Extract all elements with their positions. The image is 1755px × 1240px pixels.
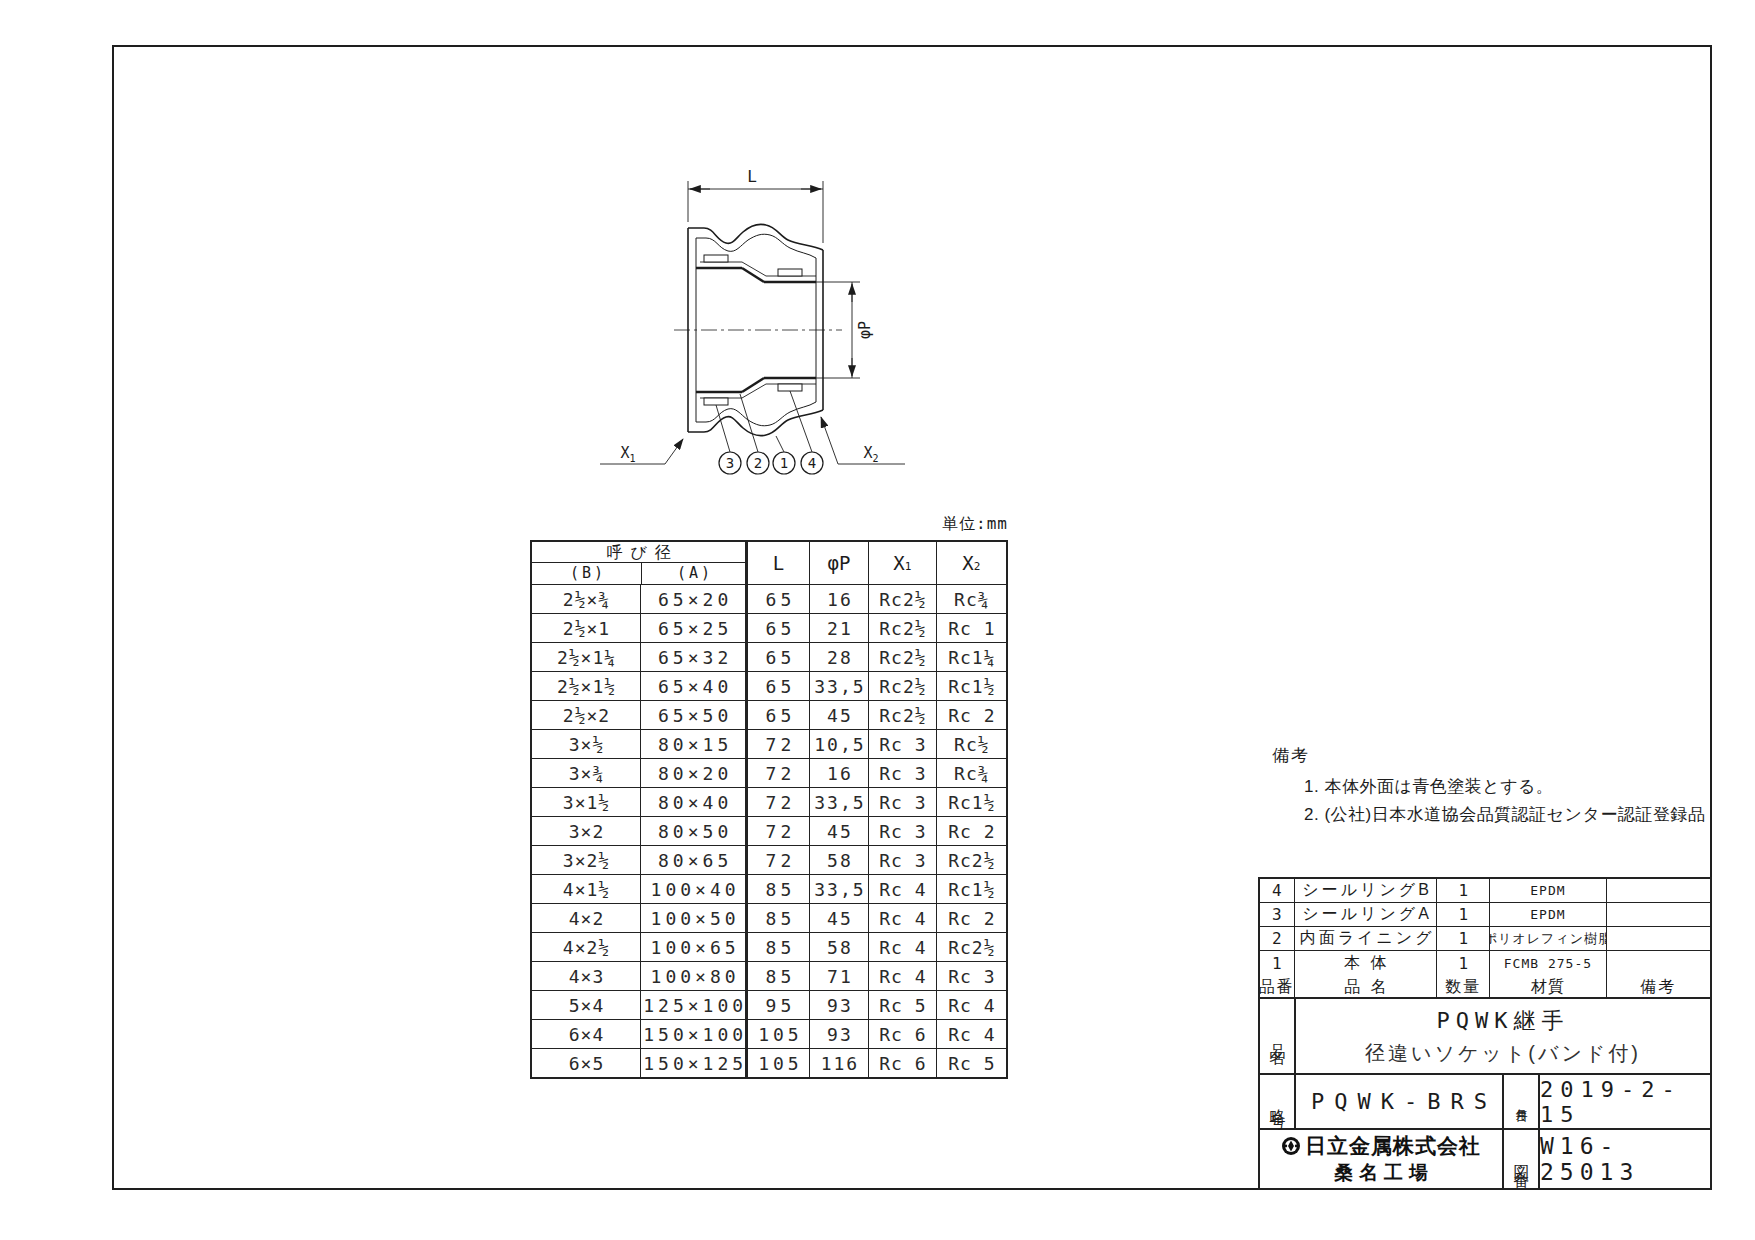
- table-cell: Rc1½: [937, 672, 1006, 700]
- table-cell: 58: [810, 846, 870, 874]
- table-cell: Rc1¼: [937, 643, 1006, 671]
- dimension-table-row: 2½×165×256521Rc2½Rc 1: [532, 613, 1006, 642]
- table-cell: 1: [1437, 951, 1490, 975]
- table-cell: 2½×¾: [532, 585, 641, 613]
- dimension-table-row: 4×1½100×408533,5Rc 4Rc1½: [532, 874, 1006, 903]
- table-cell: 65×50: [641, 701, 748, 729]
- table-cell: 72: [748, 817, 809, 845]
- drawing-date: 2019-2-15: [1540, 1075, 1710, 1128]
- dimension-table-row: 4×2½100×658558Rc 4Rc2½: [532, 932, 1006, 961]
- remarks-block: 備考 1. 本体外面は青色塗装とする。 2. (公社)日本水道協会品質認証センタ…: [1272, 744, 1722, 829]
- table-cell: Rc 3: [937, 962, 1006, 990]
- table-cell: 65×32: [641, 643, 748, 671]
- table-cell: 5×4: [532, 991, 641, 1019]
- table-cell: 10,5: [810, 730, 870, 758]
- table-cell: Rc 4: [869, 875, 936, 903]
- table-cell: 4×2½: [532, 933, 641, 961]
- table-cell: 3×2½: [532, 846, 641, 874]
- table-cell: Rc¾: [937, 585, 1006, 613]
- table-cell: Rc½: [937, 730, 1006, 758]
- table-cell: 65: [748, 672, 809, 700]
- table-cell: Rc 4: [869, 904, 936, 932]
- svg-text:2: 2: [754, 455, 762, 471]
- table-cell: 85: [748, 904, 809, 932]
- table-cell: 80×50: [641, 817, 748, 845]
- table-cell: Rc2½: [869, 614, 936, 642]
- table-cell: 33,5: [810, 788, 870, 816]
- table-cell: 65: [748, 643, 809, 671]
- table-cell: 65: [748, 701, 809, 729]
- table-cell: 65×25: [641, 614, 748, 642]
- table-cell: 6×5: [532, 1049, 641, 1077]
- parts-list-row: 3シールリングA1EPDM: [1260, 903, 1710, 927]
- drawing-number: W16-25013: [1540, 1130, 1710, 1188]
- x1-leader: X1: [600, 439, 683, 464]
- table-cell: 58: [810, 933, 870, 961]
- dimension-table-row: 5×4125×1009593Rc 5Rc 4: [532, 990, 1006, 1019]
- table-cell: 2: [1260, 927, 1295, 950]
- dimension-table-row: 2½×265×506545Rc2½Rc 2: [532, 700, 1006, 729]
- remark-item: 1. 本体外面は青色塗装とする。: [1304, 773, 1722, 801]
- table-cell: 80×65: [641, 846, 748, 874]
- table-cell: 100×80: [641, 962, 748, 990]
- table-cell: 1: [1260, 951, 1295, 975]
- table-cell: Rc1½: [937, 875, 1006, 903]
- parts-header-remarks: 備考: [1607, 975, 1710, 999]
- product-code: PQWK-BRS: [1296, 1075, 1504, 1128]
- table-cell: 72: [748, 759, 809, 787]
- table-cell: 33,5: [810, 875, 870, 903]
- dimension-table-row: 6×4150×10010593Rc 6Rc 4: [532, 1019, 1006, 1048]
- drawing-number-label: 図番: [1504, 1130, 1540, 1188]
- dimension-table-header: 呼び径 (B) (A) L φP X1 X2: [532, 542, 1006, 584]
- column-header-a: (A): [642, 563, 745, 584]
- table-cell: Rc2½: [869, 585, 936, 613]
- table-cell: 72: [748, 730, 809, 758]
- table-cell: 3×2: [532, 817, 641, 845]
- table-cell: 100×40: [641, 875, 748, 903]
- table-cell: 2½×1¼: [532, 643, 641, 671]
- table-cell: 16: [810, 759, 870, 787]
- table-cell: Rc2½: [937, 846, 1006, 874]
- table-cell: Rc 3: [869, 730, 936, 758]
- table-cell: Rc 3: [869, 759, 936, 787]
- table-cell: 93: [810, 1020, 870, 1048]
- table-cell: 116: [810, 1049, 870, 1077]
- table-cell: シールリングB: [1295, 879, 1438, 902]
- table-cell: 6×4: [532, 1020, 641, 1048]
- table-cell: 2½×2: [532, 701, 641, 729]
- parts-list-row: 2内面ライニング1ポリオレフィン樹脂: [1260, 927, 1710, 951]
- table-cell: 65×20: [641, 585, 748, 613]
- table-cell: 4×1½: [532, 875, 641, 903]
- product-type: 径違いソケット(バンド付): [1365, 1040, 1641, 1067]
- dimension-table-row: 3×2½80×657258Rc 3Rc2½: [532, 845, 1006, 874]
- company-cell: 日立金属株式会社 桑名工場: [1260, 1130, 1504, 1188]
- table-cell: Rc2½: [869, 701, 936, 729]
- remark-item: 2. (公社)日本水道協会品質認証センター認証登録品: [1304, 801, 1722, 829]
- table-cell: Rc2½: [937, 933, 1006, 961]
- table-cell: 本 体: [1295, 951, 1438, 975]
- table-cell: 150×125: [641, 1049, 748, 1077]
- table-cell: Rc 4: [937, 991, 1006, 1019]
- unit-note: 単位:mm: [860, 514, 1008, 535]
- table-cell: 80×40: [641, 788, 748, 816]
- dimension-table-row: 4×2100×508545Rc 4Rc 2: [532, 903, 1006, 932]
- table-cell: Rc 3: [869, 788, 936, 816]
- parts-list-header-row: 品番 品 名 数量 材質 備考: [1260, 975, 1710, 999]
- table-cell: Rc2½: [869, 643, 936, 671]
- table-cell: [1607, 951, 1710, 975]
- callout-balloons: 3 2 1 4: [719, 452, 823, 474]
- table-cell: シールリングA: [1295, 903, 1438, 926]
- table-cell: 125×100: [641, 991, 748, 1019]
- dimension-table-row: 2½×¾65×206516Rc2½Rc¾: [532, 584, 1006, 613]
- table-cell: 4: [1260, 879, 1295, 902]
- table-cell: Rc 3: [869, 817, 936, 845]
- table-cell: 85: [748, 875, 809, 903]
- product-name: PQWK継手 径違いソケット(バンド付): [1296, 999, 1710, 1073]
- table-cell: 1: [1437, 903, 1490, 926]
- table-cell: 2½×1: [532, 614, 641, 642]
- table-cell: Rc 3: [869, 846, 936, 874]
- svg-text:4: 4: [808, 455, 816, 471]
- dimension-table-body: 2½×¾65×206516Rc2½Rc¾2½×165×256521Rc2½Rc …: [532, 584, 1006, 1077]
- table-cell: 105: [748, 1049, 809, 1077]
- table-cell: 33,5: [810, 672, 870, 700]
- callout-leaders: [716, 391, 812, 452]
- table-cell: 16: [810, 585, 870, 613]
- title-block: 品名 PQWK継手 径違いソケット(バンド付) 略号 PQWK-BRS 年月日 …: [1258, 997, 1712, 1190]
- socket-cross-section-drawing: L: [580, 150, 950, 500]
- table-cell: Rc 1: [937, 614, 1006, 642]
- parts-header-qty: 数量: [1437, 975, 1490, 999]
- svg-text:1: 1: [780, 455, 788, 471]
- table-cell: Rc 4: [869, 933, 936, 961]
- table-cell: 45: [810, 701, 870, 729]
- column-header-x2: X2: [937, 542, 1006, 584]
- table-cell: 150×100: [641, 1020, 748, 1048]
- table-cell: 80×20: [641, 759, 748, 787]
- table-cell: Rc 5: [869, 991, 936, 1019]
- table-cell: 72: [748, 846, 809, 874]
- dimension-table-row: 3×280×507245Rc 3Rc 2: [532, 816, 1006, 845]
- parts-header-material: 材質: [1490, 975, 1607, 999]
- nominal-diameter-header-group: 呼び径 (B) (A): [532, 542, 748, 584]
- table-cell: Rc2½: [869, 672, 936, 700]
- table-cell: Rc¾: [937, 759, 1006, 787]
- parts-header-no: 品番: [1260, 975, 1295, 999]
- svg-text:L: L: [747, 167, 757, 186]
- table-cell: 95: [748, 991, 809, 1019]
- table-cell: 100×50: [641, 904, 748, 932]
- dimension-table-row: 2½×1¼65×326528Rc2½Rc1¼: [532, 642, 1006, 671]
- svg-text:3: 3: [726, 455, 734, 471]
- table-cell: 内面ライニング: [1295, 927, 1438, 950]
- table-cell: 93: [810, 991, 870, 1019]
- dimension-table-row: 3×1½80×407233,5Rc 3Rc1½: [532, 787, 1006, 816]
- table-cell: 80×15: [641, 730, 748, 758]
- table-cell: 4×2: [532, 904, 641, 932]
- table-cell: EPDM: [1490, 903, 1607, 926]
- dimension-table-row: 4×3100×808571Rc 4Rc 3: [532, 961, 1006, 990]
- svg-text:X2: X2: [863, 444, 878, 464]
- product-name-label: 品名: [1260, 999, 1296, 1073]
- table-cell: Rc 2: [937, 701, 1006, 729]
- table-cell: 21: [810, 614, 870, 642]
- table-cell: 45: [810, 904, 870, 932]
- parts-list-row: 4シールリングB1EPDM: [1260, 879, 1710, 903]
- column-header-phi-p: φP: [810, 542, 870, 584]
- table-cell: 4×3: [532, 962, 641, 990]
- table-cell: [1607, 927, 1710, 950]
- dimension-l: L: [688, 167, 823, 243]
- table-cell: FCMB 275-5: [1490, 951, 1607, 975]
- table-cell: 105: [748, 1020, 809, 1048]
- parts-list-row: 1本 体1FCMB 275-5: [1260, 951, 1710, 975]
- table-cell: Rc 5: [937, 1049, 1006, 1077]
- table-cell: 3: [1260, 903, 1295, 926]
- table-cell: Rc1½: [937, 788, 1006, 816]
- svg-text:X1: X1: [620, 444, 635, 464]
- dimension-table-row: 2½×1½65×406533,5Rc2½Rc1½: [532, 671, 1006, 700]
- dimension-table-row: 6×5150×125105116Rc 6Rc 5: [532, 1048, 1006, 1077]
- table-cell: ポリオレフィン樹脂: [1490, 927, 1607, 950]
- company-name: 日立金属株式会社: [1305, 1132, 1481, 1160]
- column-header-b: (B): [532, 563, 642, 584]
- table-cell: Rc 4: [937, 1020, 1006, 1048]
- remarks-title: 備考: [1272, 744, 1722, 767]
- nominal-diameter-header: 呼び径: [532, 542, 745, 563]
- table-cell: 1: [1437, 927, 1490, 950]
- dimension-table: 呼び径 (B) (A) L φP X1 X2 2½×¾65×206516Rc2½…: [530, 540, 1008, 1079]
- code-label: 略号: [1260, 1075, 1296, 1128]
- parts-header-name: 品 名: [1295, 975, 1438, 999]
- dimension-table-row: 3×½80×157210,5Rc 3Rc½: [532, 729, 1006, 758]
- table-cell: 1: [1437, 879, 1490, 902]
- table-cell: 3×1½: [532, 788, 641, 816]
- table-cell: 85: [748, 962, 809, 990]
- svg-text:φP: φP: [856, 321, 874, 339]
- table-cell: [1607, 903, 1710, 926]
- table-cell: Rc 4: [869, 962, 936, 990]
- table-cell: 28: [810, 643, 870, 671]
- table-cell: EPDM: [1490, 879, 1607, 902]
- date-label: 年月日: [1504, 1075, 1540, 1128]
- table-cell: 85: [748, 933, 809, 961]
- table-cell: [1607, 879, 1710, 902]
- factory-name: 桑名工場: [1328, 1160, 1434, 1186]
- dimension-table-row: 3×¾80×207216Rc 3Rc¾: [532, 758, 1006, 787]
- table-cell: 2½×1½: [532, 672, 641, 700]
- hitachi-metals-logo: [1281, 1136, 1301, 1156]
- product-series: PQWK継手: [1437, 1006, 1570, 1036]
- table-cell: Rc 6: [869, 1049, 936, 1077]
- table-cell: 71: [810, 962, 870, 990]
- table-cell: 3×¾: [532, 759, 641, 787]
- column-header-l: L: [748, 542, 809, 584]
- column-header-x1: X1: [869, 542, 936, 584]
- table-cell: Rc 2: [937, 904, 1006, 932]
- table-cell: 65: [748, 614, 809, 642]
- drawing-sheet: L: [0, 0, 1755, 1240]
- table-cell: 65: [748, 585, 809, 613]
- table-cell: 65×40: [641, 672, 748, 700]
- table-cell: 72: [748, 788, 809, 816]
- table-cell: 100×65: [641, 933, 748, 961]
- table-cell: Rc 2: [937, 817, 1006, 845]
- table-cell: 45: [810, 817, 870, 845]
- table-cell: 3×½: [532, 730, 641, 758]
- parts-list-table: 4シールリングB1EPDM3シールリングA1EPDM2内面ライニング1ポリオレフ…: [1258, 877, 1712, 1001]
- table-cell: Rc 6: [869, 1020, 936, 1048]
- x2-leader: X2: [821, 417, 905, 464]
- parts-list-rows: 4シールリングB1EPDM3シールリングA1EPDM2内面ライニング1ポリオレフ…: [1260, 879, 1710, 975]
